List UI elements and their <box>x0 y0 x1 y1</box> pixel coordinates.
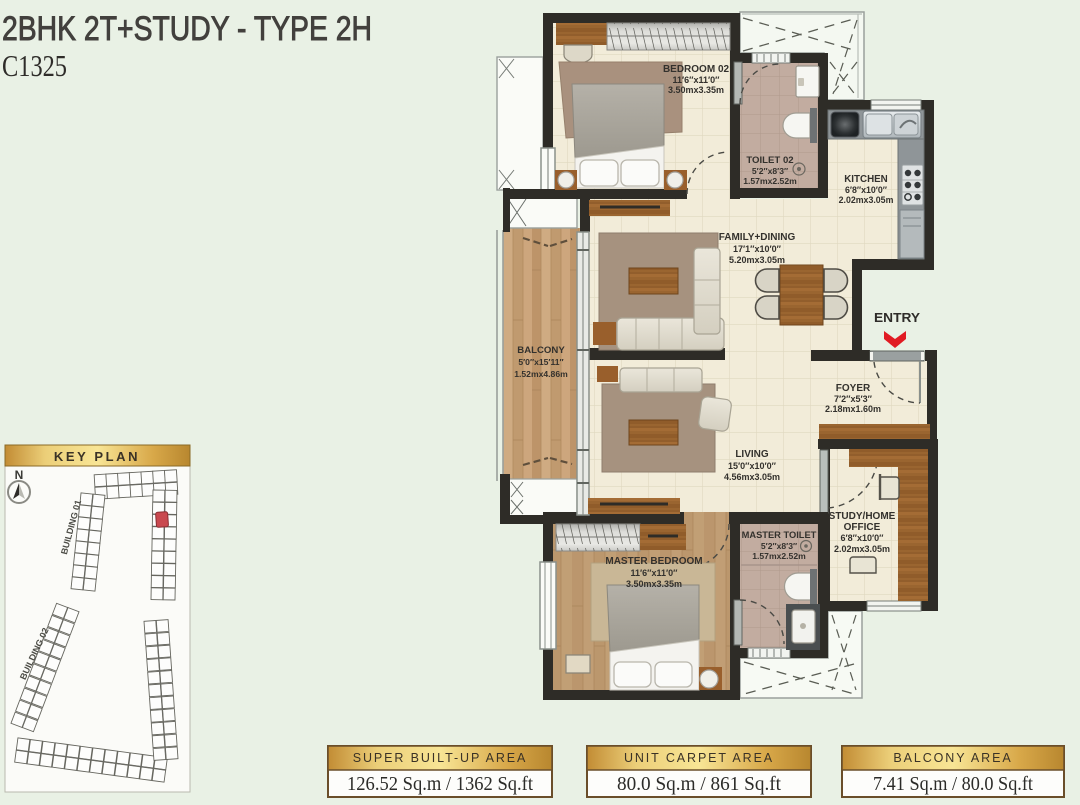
svg-text:TOILET 02: TOILET 02 <box>746 155 793 166</box>
svg-text:1.52mx4.86m: 1.52mx4.86m <box>514 369 568 379</box>
svg-text:126.52 Sq.m / 1362 Sq.ft: 126.52 Sq.m / 1362 Sq.ft <box>347 773 533 795</box>
svg-text:2.02mx3.05m: 2.02mx3.05m <box>839 195 894 205</box>
svg-text:15′0″x10′0″: 15′0″x10′0″ <box>728 461 777 471</box>
svg-text:KEY PLAN: KEY PLAN <box>54 449 140 464</box>
svg-text:5′2″x8′3″: 5′2″x8′3″ <box>761 541 797 551</box>
svg-text:MASTER BEDROOM: MASTER BEDROOM <box>605 556 702 567</box>
svg-text:2BHK 2T+STUDY - TYPE 2H: 2BHK 2T+STUDY - TYPE 2H <box>2 10 372 48</box>
svg-text:5′0″x15′11″: 5′0″x15′11″ <box>518 357 563 367</box>
svg-text:KITCHEN: KITCHEN <box>844 174 888 185</box>
svg-text:ENTRY: ENTRY <box>874 310 920 325</box>
svg-text:MASTER TOILET: MASTER TOILET <box>742 530 817 540</box>
svg-text:FAMILY+DINING: FAMILY+DINING <box>719 232 796 243</box>
svg-text:1.57mx2.52m: 1.57mx2.52m <box>752 551 806 561</box>
svg-text:11′6″x11′0″: 11′6″x11′0″ <box>673 75 721 85</box>
svg-text:2.18mx1.60m: 2.18mx1.60m <box>825 404 881 414</box>
svg-text:3.50mx3.35m: 3.50mx3.35m <box>626 579 682 589</box>
svg-text:N: N <box>15 468 24 482</box>
svg-text:80.0 Sq.m / 861 Sq.ft: 80.0 Sq.m / 861 Sq.ft <box>617 773 781 795</box>
svg-text:17′1″x10′0″: 17′1″x10′0″ <box>733 244 782 254</box>
svg-text:5′2″x8′3″: 5′2″x8′3″ <box>752 166 788 176</box>
svg-text:BEDROOM 02: BEDROOM 02 <box>663 64 730 75</box>
svg-text:FOYER: FOYER <box>836 383 871 394</box>
svg-text:5.20mx3.05m: 5.20mx3.05m <box>729 255 785 265</box>
svg-text:4.56mx3.05m: 4.56mx3.05m <box>724 472 780 482</box>
svg-text:BALCONY: BALCONY <box>517 345 565 356</box>
svg-text:11′6″x11′0″: 11′6″x11′0″ <box>631 568 679 578</box>
svg-text:STUDY/HOME: STUDY/HOME <box>829 511 896 522</box>
svg-text:SUPER BUILT-UP AREA: SUPER BUILT-UP AREA <box>353 751 528 765</box>
svg-text:7′2″x5′3″: 7′2″x5′3″ <box>834 394 873 404</box>
svg-text:BALCONY AREA: BALCONY AREA <box>893 751 1012 765</box>
svg-text:C1325: C1325 <box>2 48 67 83</box>
svg-text:2.02mx3.05m: 2.02mx3.05m <box>834 544 890 554</box>
svg-text:UNIT CARPET AREA: UNIT CARPET AREA <box>624 751 774 765</box>
svg-text:OFFICE: OFFICE <box>844 522 881 533</box>
svg-text:LIVING: LIVING <box>735 449 769 460</box>
svg-text:6′8″x10′0″: 6′8″x10′0″ <box>845 185 888 195</box>
svg-text:3.50mx3.35m: 3.50mx3.35m <box>668 85 724 95</box>
svg-text:1.57mx2.52m: 1.57mx2.52m <box>743 176 797 186</box>
svg-text:6′8″x10′0″: 6′8″x10′0″ <box>841 533 885 543</box>
svg-text:7.41 Sq.m / 80.0 Sq.ft: 7.41 Sq.m / 80.0 Sq.ft <box>873 773 1033 795</box>
